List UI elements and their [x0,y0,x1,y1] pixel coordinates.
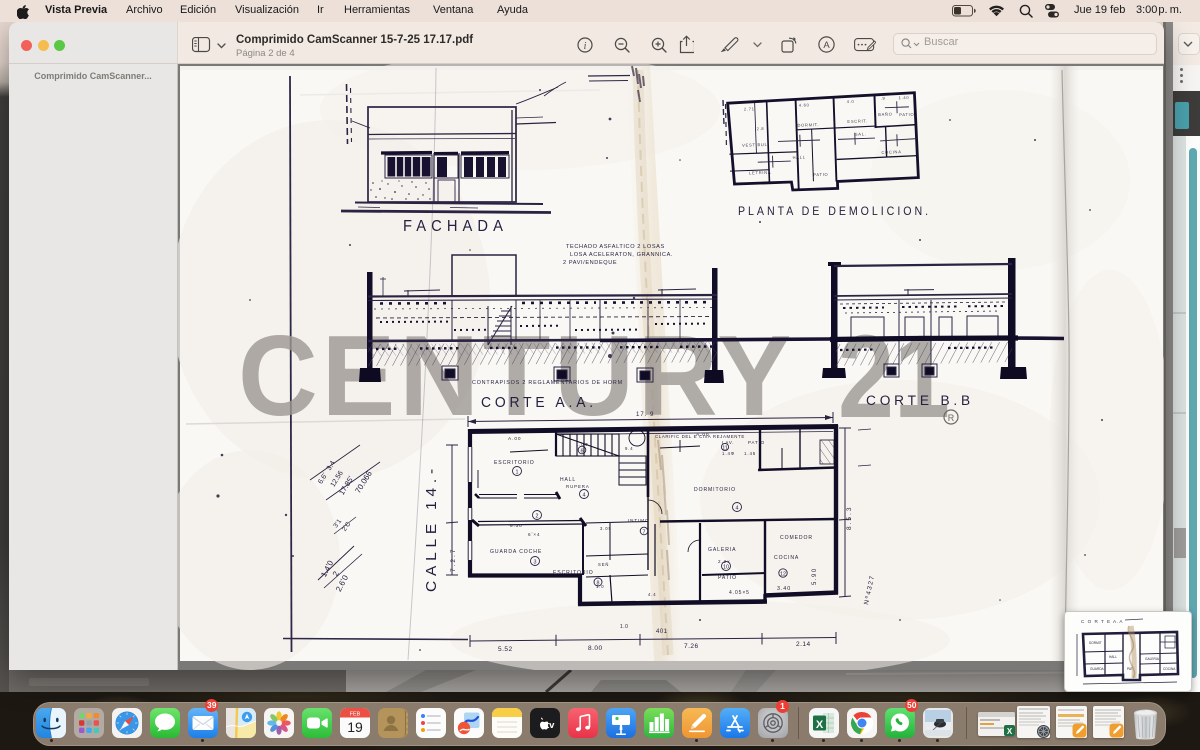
svg-text:PATIO: PATIO [748,440,765,445]
svg-text:GALERIA: GALERIA [708,547,736,553]
svg-text:1.4Φ: 1.4Φ [722,451,735,456]
svg-text:2: 2 [536,514,539,520]
svg-text:11: 11 [722,446,728,452]
svg-text:COCINA: COCINA [881,149,901,155]
svg-text:2.14: 2.14 [796,641,811,648]
svg-text:PLANTA DE DEMOLICION.: PLANTA DE DEMOLICION. [738,206,931,218]
svg-text:BAÑO: BAÑO [878,111,893,116]
svg-text:ESCRIT.: ESCRIT. [847,118,868,124]
svg-text:HALL: HALL [793,155,806,160]
svg-text:DORMITORIO: DORMITORIO [694,487,736,493]
svg-text:A.00: A.00 [696,432,709,438]
svg-text:COCINA: COCINA [774,555,799,561]
svg-text:19: 19 [347,719,363,735]
svg-text:12: 12 [780,572,786,578]
svg-text:3: 3 [534,560,537,566]
svg-text:TECHADO ASFALTICO 2 LOSAS: TECHADO ASFALTICO 2 LOSAS [566,244,665,250]
svg-text:ESCRITORIO: ESCRITORIO [494,460,535,466]
svg-text:HALL: HALL [1109,655,1117,659]
svg-text:FEB: FEB [350,712,361,718]
svg-text:GUARDA COCHE: GUARDA COCHE [490,549,542,555]
svg-text:4: 4 [583,493,586,499]
svg-text:8.5.3: 8.5.3 [846,506,853,530]
svg-text:.9: .9 [880,96,885,101]
svg-text:7.2.7: 7.2.7 [450,548,457,572]
svg-text:2.8: 2.8 [756,126,764,131]
svg-text:4: 4 [736,506,739,512]
svg-text:LETRINA: LETRINA [749,170,771,176]
svg-text:PATIO: PATIO [899,112,914,118]
svg-text:CORTE A.A.: CORTE A.A. [481,395,597,411]
svg-text:CALLE 14.-: CALLE 14.- [424,464,440,592]
svg-text:7: 7 [643,530,646,536]
svg-text:1.0: 1.0 [620,624,628,630]
svg-text:FACHADA: FACHADA [403,218,508,235]
svg-text:1: 1 [516,470,519,476]
svg-text:X: X [816,719,824,731]
svg-text:9.4: 9.4 [625,446,634,451]
svg-text:R: R [948,413,955,423]
svg-text:COCINA: COCINA [1163,667,1176,671]
svg-text:COMEDOR: COMEDOR [780,535,813,541]
svg-text:1.45: 1.45 [744,451,756,456]
svg-text:17. 9: 17. 9 [636,412,654,418]
svg-text:RUPERA: RUPERA [566,484,590,489]
svg-text:X: X [1007,727,1013,736]
svg-text:8: 8 [597,581,600,587]
svg-text:4.05×5: 4.05×5 [729,590,750,596]
svg-text:6ʼ×4: 6ʼ×4 [528,532,540,537]
svg-text:PATIO: PATIO [718,575,737,581]
svg-text:ESCRITORIO: ESCRITORIO [553,570,594,576]
svg-text:tv: tv [546,720,555,731]
svg-text:1.40: 1.40 [898,95,909,100]
svg-text:GUARDA: GUARDA [1090,667,1105,671]
svg-text:CORTE B.B: CORTE B.B [866,393,974,408]
svg-text:PATIO: PATIO [813,172,828,178]
svg-text:2.71: 2.71 [744,106,755,111]
svg-text:8.00: 8.00 [588,645,603,652]
svg-text:VESTIBUL: VESTIBUL [742,142,768,148]
svg-text:LOSA ACELERATON, GRANNICA.: LOSA ACELERATON, GRANNICA. [570,252,673,258]
svg-text:C O R T E A.A: C O R T E A.A [1081,619,1123,624]
svg-text:LAV.: LAV. [722,440,734,445]
svg-text:4.60: 4.60 [799,102,810,107]
svg-text:6: 6 [581,449,584,455]
svg-text:HALL: HALL [560,477,576,483]
svg-text:5.90: 5.90 [812,567,818,585]
svg-text:401: 401 [656,629,668,635]
svg-text:DORMIT: DORMIT [1089,641,1102,645]
svg-text:2 PAVI/ENDEQUE: 2 PAVI/ENDEQUE [563,260,617,266]
svg-text:7.26: 7.26 [684,643,699,650]
svg-text:i: i [584,41,587,52]
svg-text:DORMIT.: DORMIT. [797,122,819,128]
svg-text:INTIMO: INTIMO [628,518,649,523]
svg-text:A: A [823,40,830,51]
svg-text:SAL.: SAL. [855,131,867,136]
svg-text:GALERIA: GALERIA [1145,657,1160,661]
svg-text:A.00: A.00 [508,436,521,442]
svg-text:3.40: 3.40 [777,586,791,592]
svg-text:3.05: 3.05 [600,526,612,531]
svg-text:SEÑ: SEÑ [598,562,609,567]
svg-text:6.30: 6.30 [510,523,523,528]
svg-text:CONTRAPISOS 2 REGLAMENTARIOS: CONTRAPISOS 2 REGLAMENTARIOS DE HORM [472,380,623,386]
svg-text:5.52: 5.52 [498,646,513,653]
svg-text:4.4: 4.4 [648,592,657,597]
svg-text:10: 10 [723,565,729,571]
svg-text:4.0: 4.0 [847,99,855,104]
